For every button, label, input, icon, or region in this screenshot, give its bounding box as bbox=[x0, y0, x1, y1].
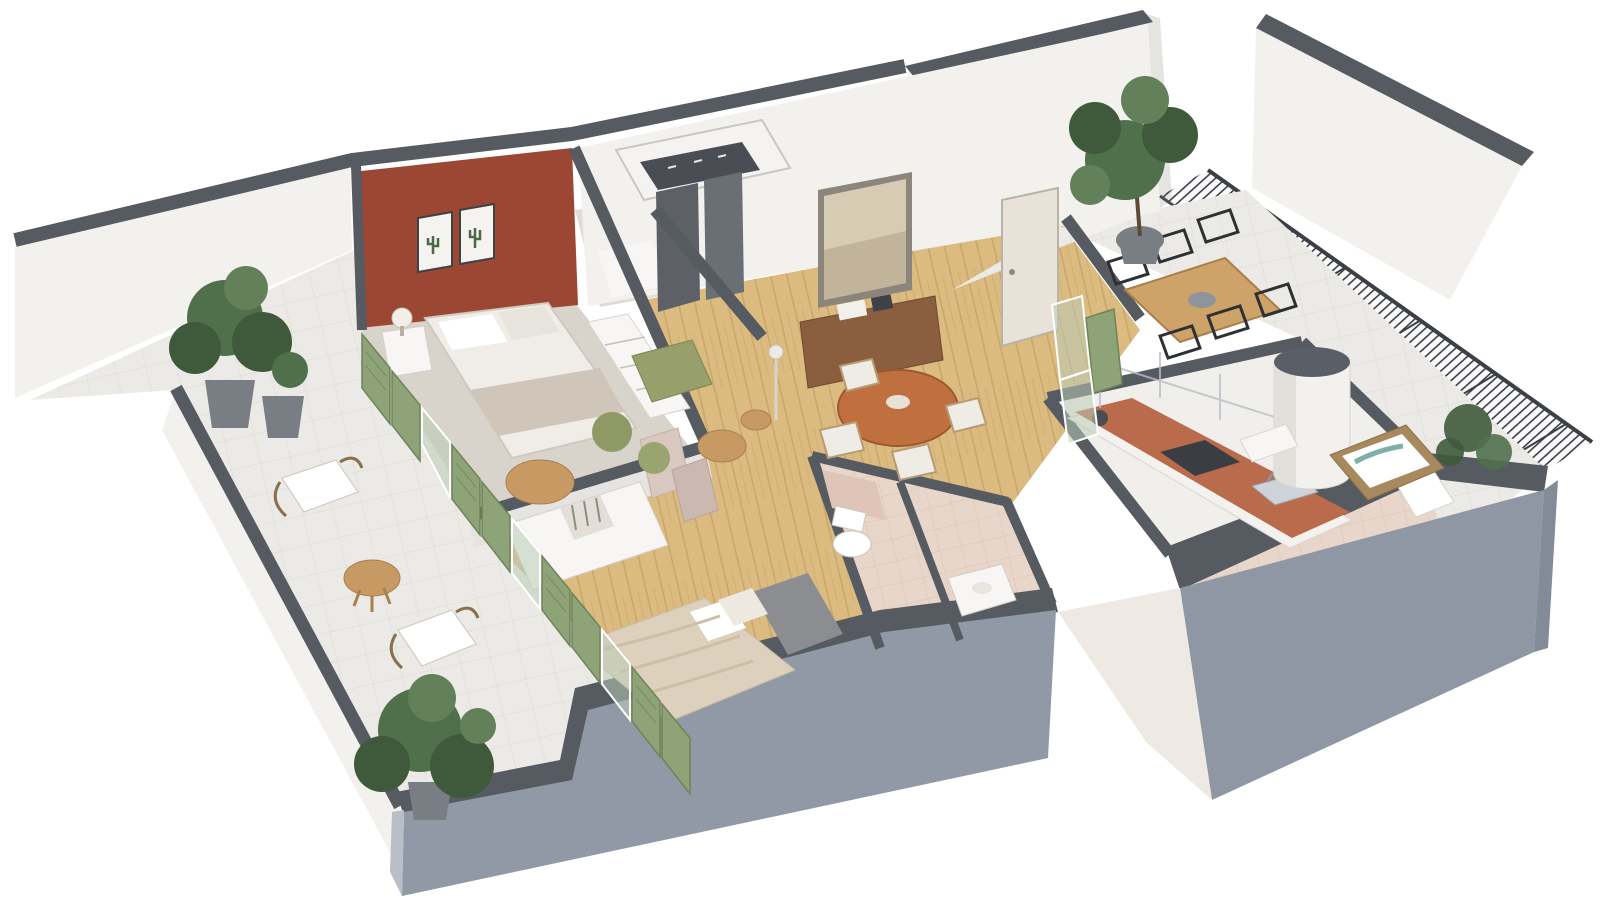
floor-plan-render bbox=[0, 0, 1600, 924]
table-lamp bbox=[392, 308, 412, 328]
pouf bbox=[638, 442, 670, 474]
table-centerpiece bbox=[886, 395, 910, 409]
south-gray-left-edge bbox=[390, 810, 404, 896]
floor-plan-svg bbox=[0, 0, 1600, 924]
terrace-side-table bbox=[344, 560, 400, 596]
coffee-table bbox=[698, 430, 746, 462]
living-artwork bbox=[818, 172, 912, 308]
round-side-table bbox=[506, 460, 574, 504]
table-bowl bbox=[1188, 292, 1216, 308]
cylinder-column bbox=[1274, 347, 1350, 489]
washbasin bbox=[972, 582, 992, 594]
toilet-bowl bbox=[833, 531, 871, 557]
pouf bbox=[592, 412, 632, 452]
coffee-table bbox=[741, 410, 771, 430]
terrace-door bbox=[1002, 188, 1058, 346]
